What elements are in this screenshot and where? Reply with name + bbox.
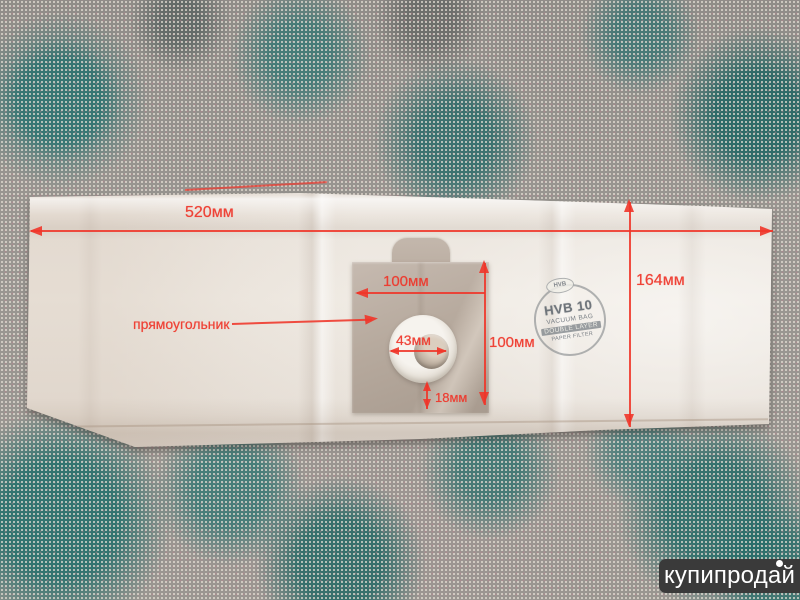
dimension-plate-width-label: 100мм	[383, 273, 429, 290]
arrowhead-up-icon	[423, 381, 431, 391]
arrowhead-down-icon	[423, 399, 431, 409]
dimension-bag-width-line	[31, 230, 773, 232]
arrowhead-left-icon	[29, 226, 42, 236]
brand-stamp: HVB HVB 10 VACUUM BAG DOUBLE LAYER PAPER…	[529, 279, 610, 360]
dimension-plate-height-line	[484, 263, 486, 405]
dimension-hole-diameter-label: 43мм	[396, 332, 431, 348]
arrowhead-up-icon	[479, 260, 489, 273]
dimension-bag-width-label: 520мм	[185, 204, 234, 222]
photo-scene: HVB HVB 10 VACUUM BAG DOUBLE LAYER PAPER…	[0, 0, 800, 600]
arrowhead-right-icon	[365, 313, 379, 324]
dimension-bag-height-line	[629, 202, 631, 427]
arrowhead-left-icon	[355, 288, 368, 298]
watermark-text: купипродай	[664, 562, 795, 590]
arrowhead-left-icon	[389, 347, 399, 355]
arrowhead-right-icon	[437, 347, 447, 355]
site-watermark: купипродай	[659, 559, 800, 593]
arrowhead-up-icon	[624, 199, 634, 212]
vacuum-bag-paper: HVB HVB 10 VACUUM BAG DOUBLE LAYER PAPER…	[0, 0, 800, 600]
plate-shape-label: прямоугольник	[133, 316, 229, 332]
bag-bottom-seam	[30, 418, 768, 428]
dimension-plate-height-label: 100мм	[489, 334, 535, 351]
dimension-bag-height-label: 164мм	[636, 272, 685, 290]
arrowhead-right-icon	[760, 226, 773, 236]
watermark-dot-icon	[776, 560, 783, 567]
dimension-hole-offset-label: 18мм	[435, 390, 467, 405]
arrowhead-down-icon	[479, 392, 489, 405]
dimension-plate-width-line	[357, 292, 485, 294]
vacuum-bag: HVB HVB 10 VACUUM BAG DOUBLE LAYER PAPER…	[0, 0, 800, 600]
arrowhead-down-icon	[624, 414, 634, 427]
stamp-logo-oval: HVB	[545, 276, 575, 295]
